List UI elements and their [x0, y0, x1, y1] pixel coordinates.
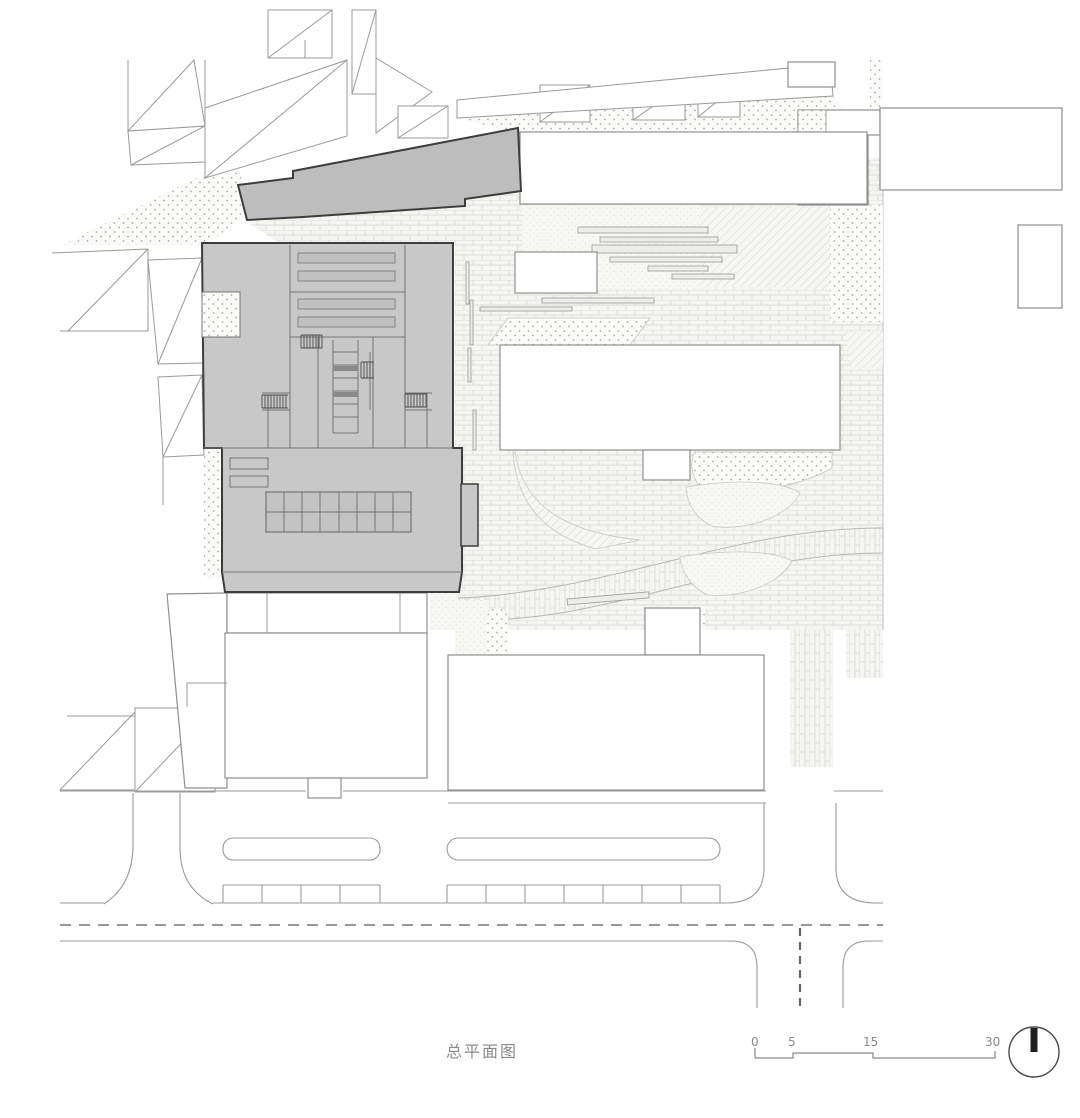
- north-arrow-icon: [1009, 1027, 1059, 1077]
- east-bay-protrusion: [461, 484, 478, 546]
- scale-label-30: 30: [985, 1035, 1000, 1049]
- hatch-patch-northeast: [800, 205, 830, 290]
- paved-path-south: [790, 630, 833, 767]
- main-building: [202, 243, 478, 592]
- paved-path-southeast: [846, 630, 883, 678]
- planting-patch-south: [455, 600, 487, 657]
- gravel-patch-southwest: [487, 608, 508, 657]
- scale-label-0: 0: [751, 1035, 759, 1049]
- gravel-strip-northeast: [870, 60, 883, 107]
- pavilion: [515, 252, 597, 293]
- neighbor-building-northeast: [880, 108, 1062, 190]
- neighbor-building-north: [520, 132, 867, 204]
- courtyard: [202, 292, 240, 337]
- scale-label-15: 15: [863, 1035, 878, 1049]
- neighbor-building-southwest: [167, 593, 427, 798]
- skylight-grid: [266, 492, 411, 532]
- site-plan-drawing: 总平面图 0 5 15 30: [0, 0, 1080, 1118]
- median-planter-east: [447, 838, 720, 860]
- scale-label-5: 5: [788, 1035, 796, 1049]
- gravel-area-east: [830, 205, 883, 322]
- drawing-title: 总平面图: [446, 1042, 518, 1061]
- gravel-band-plaza: [488, 318, 650, 345]
- main-building-footprint: [202, 243, 462, 592]
- median-planter-west: [223, 838, 380, 860]
- site-plan-sheet: 总平面图 0 5 15 30: [0, 0, 1080, 1118]
